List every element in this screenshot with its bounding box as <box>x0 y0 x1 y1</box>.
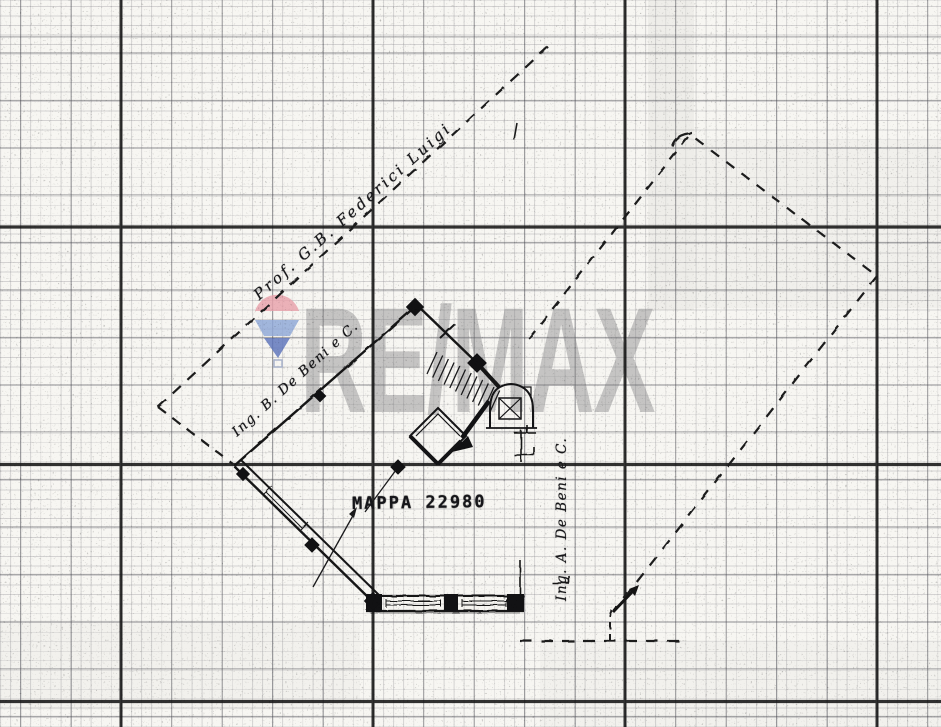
scan-noise <box>0 0 941 727</box>
site-plan-drawing <box>0 0 941 727</box>
annotation-owner-right-side: Ing. A. De Beni e C. <box>554 437 570 601</box>
scanned-plan-sheet: RE/MAX <box>0 0 941 727</box>
annotation-map-stamp: MAPPA 22980 <box>352 492 487 514</box>
